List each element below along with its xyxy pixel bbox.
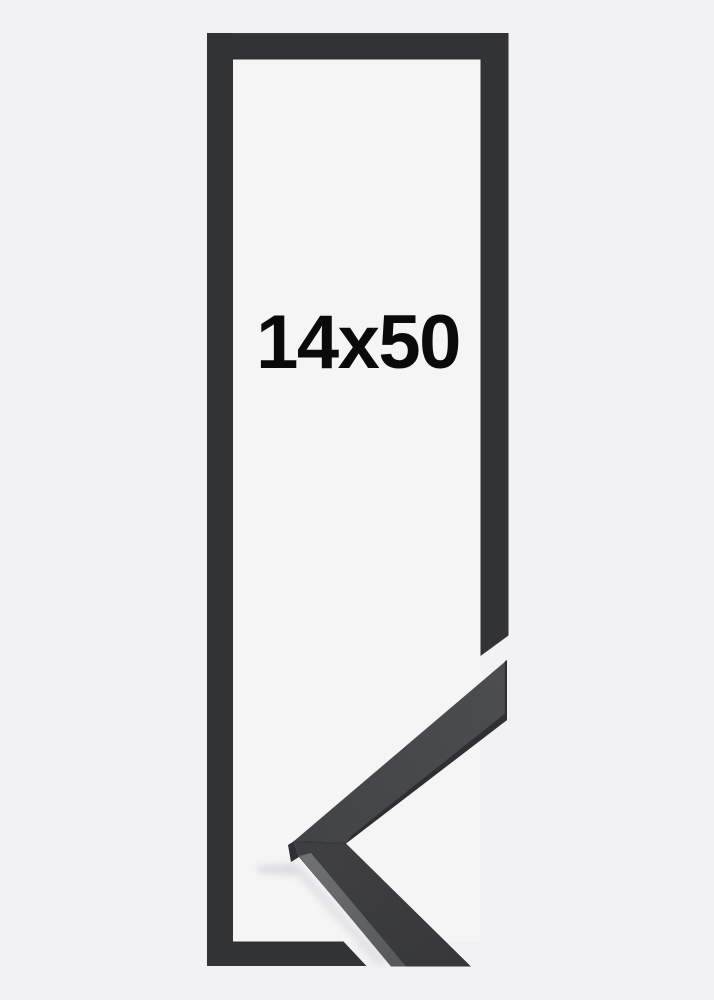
frame-top-bar (207, 33, 509, 60)
frame-bottom-bar (207, 942, 367, 967)
frame-left-bar (207, 33, 233, 966)
size-label: 14x50 (208, 305, 508, 381)
frame-product-image: 14x50 (0, 0, 714, 1000)
frame-illustration (0, 0, 714, 1000)
